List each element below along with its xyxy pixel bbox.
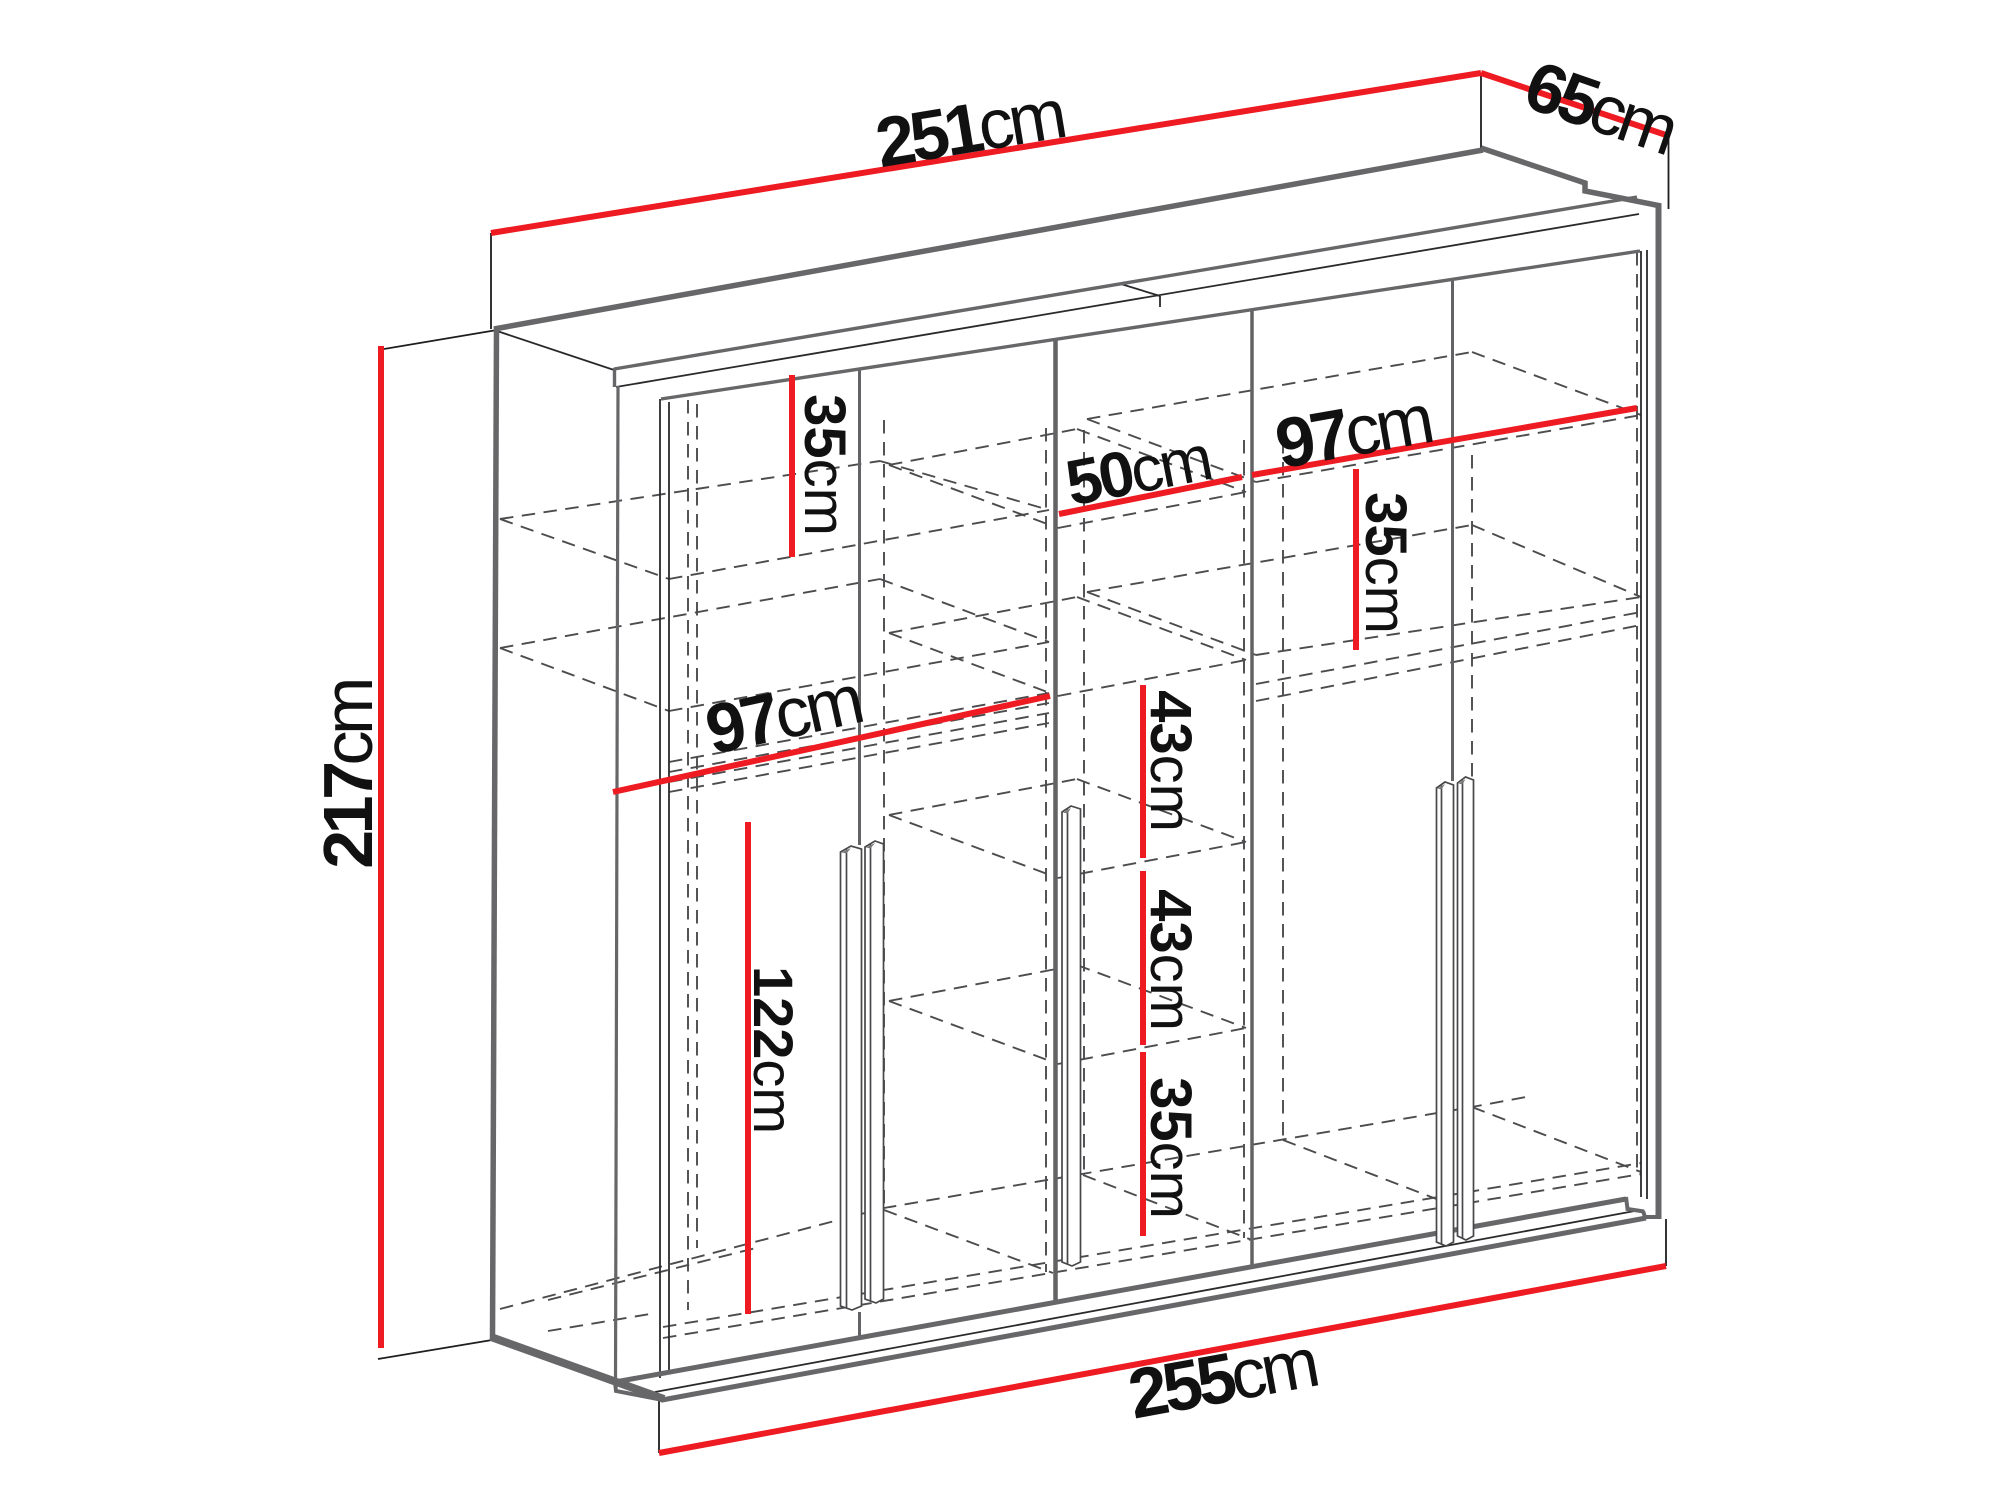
- svg-text:35cm: 35cm: [792, 394, 857, 536]
- svg-text:217cm: 217cm: [309, 681, 387, 869]
- svg-text:43cm: 43cm: [1138, 690, 1203, 832]
- svg-text:35cm: 35cm: [1353, 492, 1418, 634]
- svg-text:43cm: 43cm: [1138, 889, 1203, 1031]
- svg-text:35cm: 35cm: [1138, 1077, 1203, 1219]
- svg-text:122cm: 122cm: [742, 966, 805, 1134]
